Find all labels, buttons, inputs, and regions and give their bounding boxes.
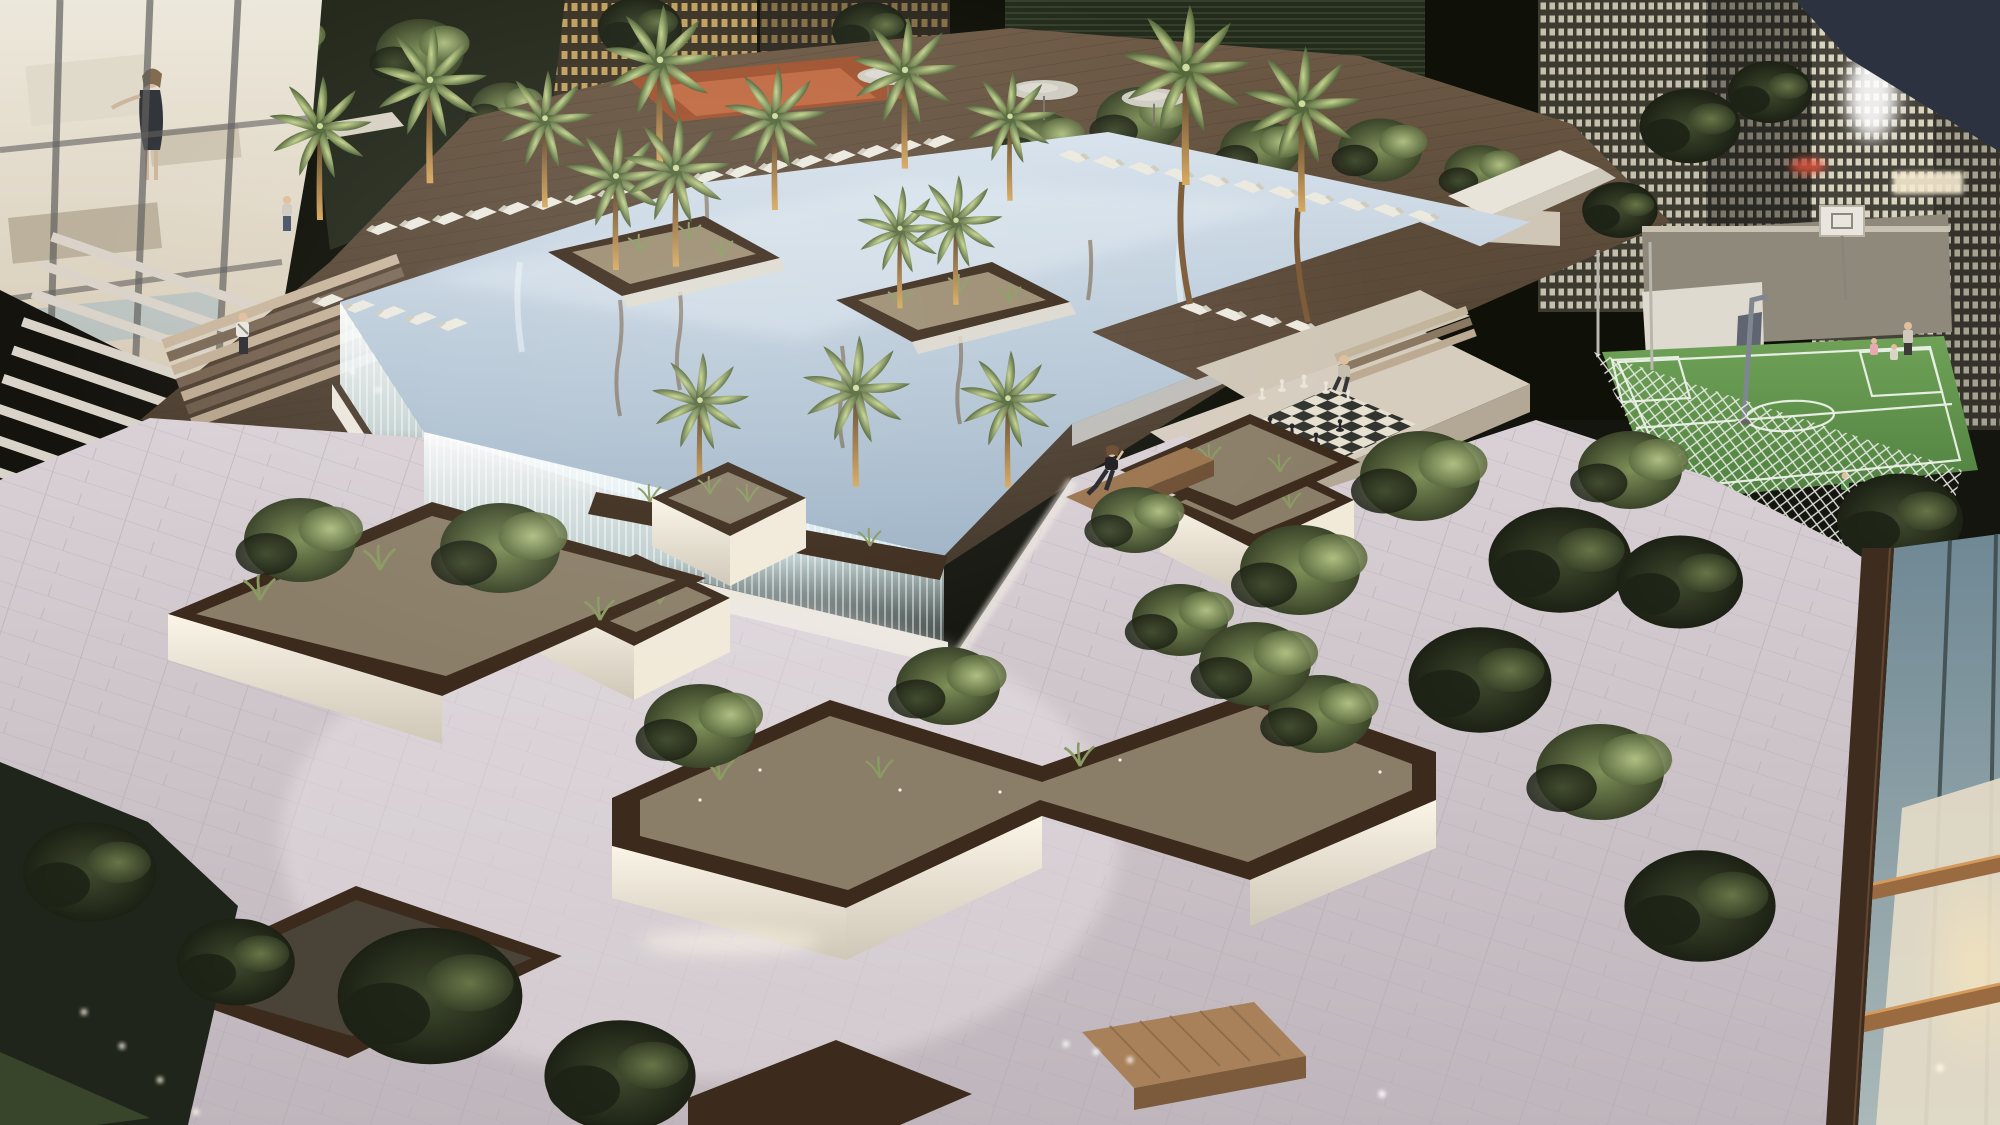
dark-tree	[23, 822, 157, 921]
olive-tree	[1489, 507, 1632, 612]
olive-tree	[1617, 536, 1743, 629]
olive-tree	[1409, 627, 1552, 732]
dark-tree-bottom-left	[338, 928, 523, 1064]
olive-tree	[1624, 850, 1775, 962]
rooftop-night-render	[0, 0, 2000, 1125]
balcony-light	[1936, 1064, 1944, 1072]
dark-tree	[177, 919, 295, 1006]
render-canvas	[0, 0, 2000, 1125]
